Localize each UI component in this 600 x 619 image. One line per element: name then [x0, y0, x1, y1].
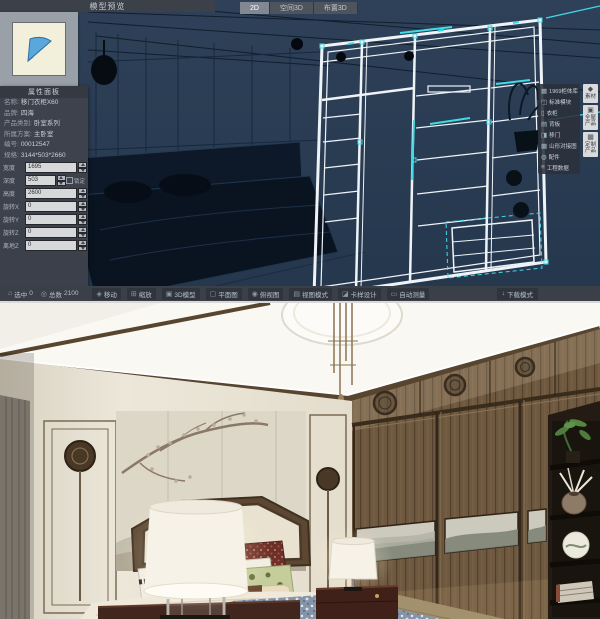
rotate-z-input[interactable]: 0	[25, 227, 77, 238]
model-3d-icon: ▣	[166, 290, 173, 298]
prop-size-row: 规格:3144*503*2660	[0, 151, 88, 162]
medallion-ornament	[317, 468, 339, 490]
viewport-canvas[interactable]	[0, 0, 600, 301]
wardrobe-icon: ▯	[541, 109, 545, 117]
spinner-down-icon[interactable]	[78, 168, 87, 174]
spinner-down-icon[interactable]	[78, 233, 87, 239]
target-icon: ◎	[41, 290, 47, 298]
component-menu: ▦1969柜体库 ◫标准模块 ▯衣柜 ▤背板 ◨移门 ▩山形对接图 ◍配件 ≡工…	[538, 84, 580, 174]
back-panel-icon: ▤	[541, 120, 547, 128]
tab-space-3d[interactable]: 空间3D	[270, 2, 314, 14]
viewport-toolbar: ◈移动 ⊞缩放 ▣3D模型 ▢平面图 ◉俯视图 ▤视图模式 ◪卡样设计 ▭自动测…	[92, 288, 429, 300]
materials-icon: ◆	[583, 86, 598, 94]
move-button[interactable]: ◈移动	[92, 288, 120, 300]
zoom-button[interactable]: ⊞缩放	[127, 288, 156, 300]
render-image	[0, 303, 600, 619]
spinner-down-icon[interactable]	[57, 181, 66, 187]
cad-editor: 模型预览 2D 空间3D 布置3D 属性面板 名称:移门衣柜X60 品牌:四海 …	[0, 0, 600, 301]
dock-tab-custom-products[interactable]: ▦定制产品	[583, 132, 598, 157]
menu-item-engineering-data[interactable]: ≡工程数据	[538, 162, 580, 173]
rotate-y-input[interactable]: 0	[25, 214, 77, 225]
height-input[interactable]: 2600	[25, 188, 77, 199]
plan-view-button[interactable]: ▢平面图	[206, 288, 242, 300]
width-field-row: 宽度 1695	[0, 161, 88, 174]
tab-2d[interactable]: 2D	[240, 2, 270, 14]
height-field-row: 高度 2600	[0, 187, 88, 200]
menu-item-accessories[interactable]: ◍配件	[538, 151, 580, 162]
custom-products-icon: ▦	[583, 134, 598, 142]
spinner-down-icon[interactable]	[78, 246, 87, 252]
design-app-window: 模型预览 2D 空间3D 布置3D 属性面板 名称:移门衣柜X60 品牌:四海 …	[0, 0, 600, 619]
prop-brand-row: 品牌:四海	[0, 109, 88, 120]
lock-checkbox[interactable]: 锁定	[66, 177, 85, 185]
properties-panel-title: 属性面板	[0, 86, 88, 98]
total-count: ◎总数2100	[41, 289, 79, 299]
decorative-plate	[563, 532, 589, 558]
preview-panel-header: 模型预览	[0, 0, 215, 12]
plan-view-icon: ▢	[210, 290, 217, 298]
properties-panel: 属性面板 名称:移门衣柜X60 品牌:四海 产品类别:卧室系列 所属方案:主卧室…	[0, 86, 88, 286]
sample-design-icon: ◪	[342, 290, 349, 298]
menu-item-standard-module[interactable]: ◫标准模块	[538, 96, 580, 107]
elevation-diagram-icon: ▩	[541, 142, 547, 150]
width-input[interactable]: 1695	[25, 162, 77, 173]
move-icon: ◈	[96, 290, 101, 298]
menu-item-sliding-door[interactable]: ◨移门	[538, 129, 580, 140]
depth-field-row: 深度 503 锁定	[0, 174, 88, 187]
menu-item-elevation-diagram[interactable]: ▩山形对接图	[538, 140, 580, 151]
prop-name-row: 名称:移门衣柜X60	[0, 98, 88, 109]
rotate-x-input[interactable]: 0	[25, 201, 77, 212]
whole-house-icon: ▣	[583, 107, 598, 115]
menu-item-cabinet-library[interactable]: ▦1969柜体库	[538, 85, 580, 96]
selected-count: ⌂选中0	[8, 289, 33, 299]
checkbox-icon	[66, 177, 73, 184]
rotate-z-field-row: 旋转Z 0	[0, 226, 88, 239]
view-mode-icon: ▤	[293, 290, 300, 298]
menu-item-wardrobe[interactable]: ▯衣柜	[538, 107, 580, 118]
dock-tabs: ◆素材 ▣全屋产品 ▦定制产品	[583, 84, 599, 157]
render-preview	[0, 303, 600, 619]
view-mode-tabs: 2D 空间3D 布置3D	[240, 2, 358, 14]
dock-tab-whole-house[interactable]: ▣全屋产品	[583, 105, 598, 130]
right-nightstand	[310, 527, 398, 619]
download-icon: ↓	[502, 290, 505, 297]
rotate-x-field-row: 旋转X 0	[0, 200, 88, 213]
dock-tab-materials[interactable]: ◆素材	[583, 84, 598, 103]
standard-module-icon: ◫	[541, 98, 547, 106]
prop-scheme-row: 所属方案:主卧室	[0, 130, 88, 141]
elevation-input[interactable]: 0	[25, 240, 77, 251]
sliding-door-icon: ◨	[541, 131, 547, 139]
zoom-icon: ⊞	[131, 290, 137, 298]
spinner-down-icon[interactable]	[78, 194, 87, 200]
spinner-down-icon[interactable]	[78, 220, 87, 226]
spinner-down-icon[interactable]	[78, 207, 87, 213]
cabinet-library-icon: ▦	[541, 87, 547, 95]
sample-design-button[interactable]: ◪卡样设计	[338, 288, 381, 300]
model-3d-button[interactable]: ▣3D模型	[162, 288, 200, 300]
menu-item-back-panel[interactable]: ▤背板	[538, 118, 580, 129]
depth-input[interactable]: 503	[25, 175, 56, 186]
auto-measure-icon: ▭	[391, 290, 398, 298]
tab-layout-3d[interactable]: 布置3D	[314, 2, 358, 14]
top-view-button[interactable]: ◉俯视图	[248, 288, 284, 300]
display-shelf	[548, 401, 600, 619]
elevation-field-row: 离地Z 0	[0, 239, 88, 252]
status-bar: ⌂选中0 ◎总数2100 ◈移动 ⊞缩放 ▣3D模型 ▢平面图 ◉俯视图 ▤视图…	[0, 286, 600, 301]
download-mode-button[interactable]: ↓下载模式	[497, 288, 538, 300]
engineering-data-icon: ≡	[541, 164, 545, 171]
preview-thumbnail[interactable]	[12, 22, 66, 76]
view-mode-button[interactable]: ▤视图模式	[289, 288, 332, 300]
preview-panel-title: 模型预览	[90, 1, 126, 12]
auto-measure-button[interactable]: ▭自动测量	[387, 288, 430, 300]
door-swing-icon	[20, 30, 58, 68]
preview-panel	[0, 12, 78, 86]
top-view-icon: ◉	[252, 290, 258, 298]
prop-number-row: 编号:00012547	[0, 140, 88, 151]
accessories-icon: ◍	[541, 153, 547, 161]
prop-category-row: 产品类别:卧室系列	[0, 119, 88, 130]
medallion-ornament	[65, 441, 95, 471]
rotate-y-field-row: 旋转Y 0	[0, 213, 88, 226]
home-icon: ⌂	[8, 290, 12, 297]
